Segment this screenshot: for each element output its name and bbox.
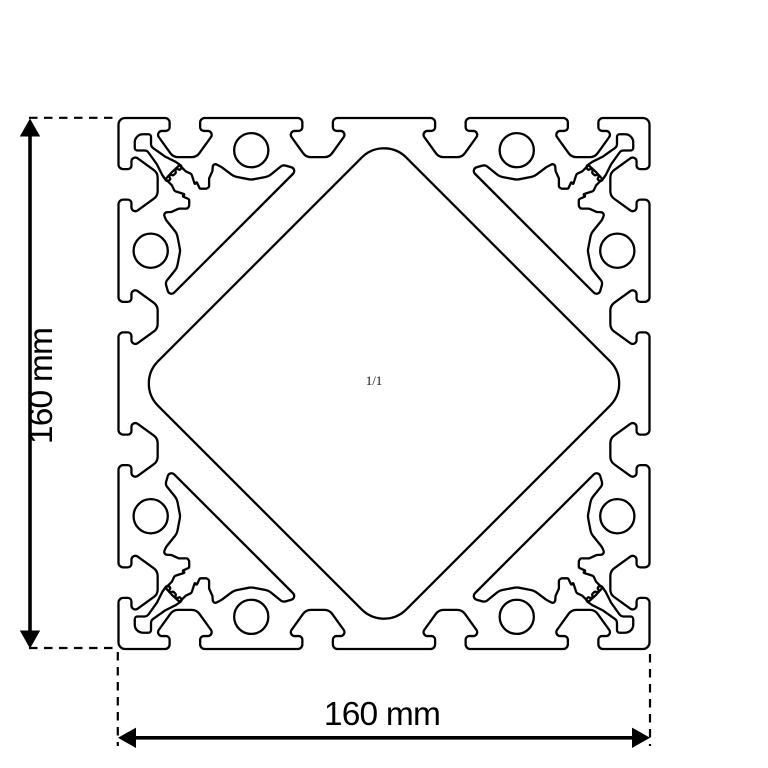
svg-text:1/1: 1/1 xyxy=(366,373,383,388)
svg-text:160 mm: 160 mm xyxy=(23,328,60,444)
svg-text:160 mm: 160 mm xyxy=(324,696,440,733)
